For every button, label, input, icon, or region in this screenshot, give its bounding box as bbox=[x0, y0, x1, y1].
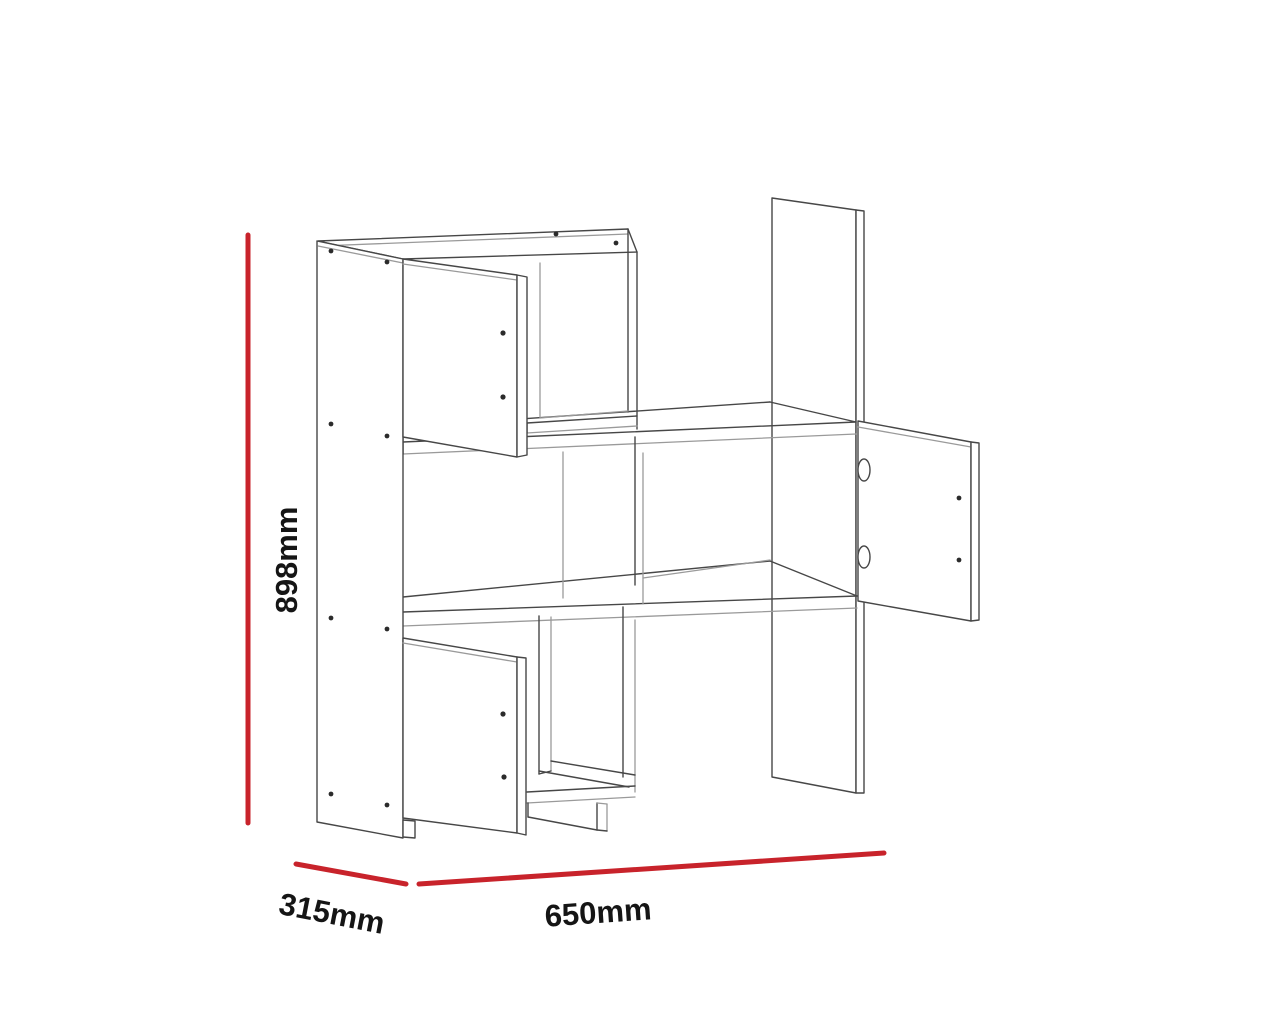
height-dimension-label: 898mm bbox=[269, 507, 304, 614]
right-back-panel bbox=[772, 198, 864, 793]
shelf-wireframe-drawing: 898mm 315mm 650mm bbox=[0, 0, 1280, 1024]
depth-dimension-line bbox=[296, 864, 406, 884]
width-dimension-label: 650mm bbox=[544, 891, 653, 933]
bottom-door-open bbox=[403, 638, 526, 835]
middle-divider bbox=[563, 437, 643, 604]
top-door-open bbox=[403, 259, 527, 457]
right-door-open bbox=[858, 421, 979, 621]
furniture-dimension-diagram: 898mm 315mm 650mm bbox=[0, 0, 1280, 1024]
hinge-hole-bottom bbox=[858, 546, 870, 568]
depth-dimension-label: 315mm bbox=[276, 886, 388, 941]
bottom-compartment bbox=[527, 607, 635, 831]
width-dimension-line bbox=[419, 853, 884, 884]
left-side-panel bbox=[317, 241, 415, 838]
hinge-hole-top bbox=[858, 459, 870, 481]
